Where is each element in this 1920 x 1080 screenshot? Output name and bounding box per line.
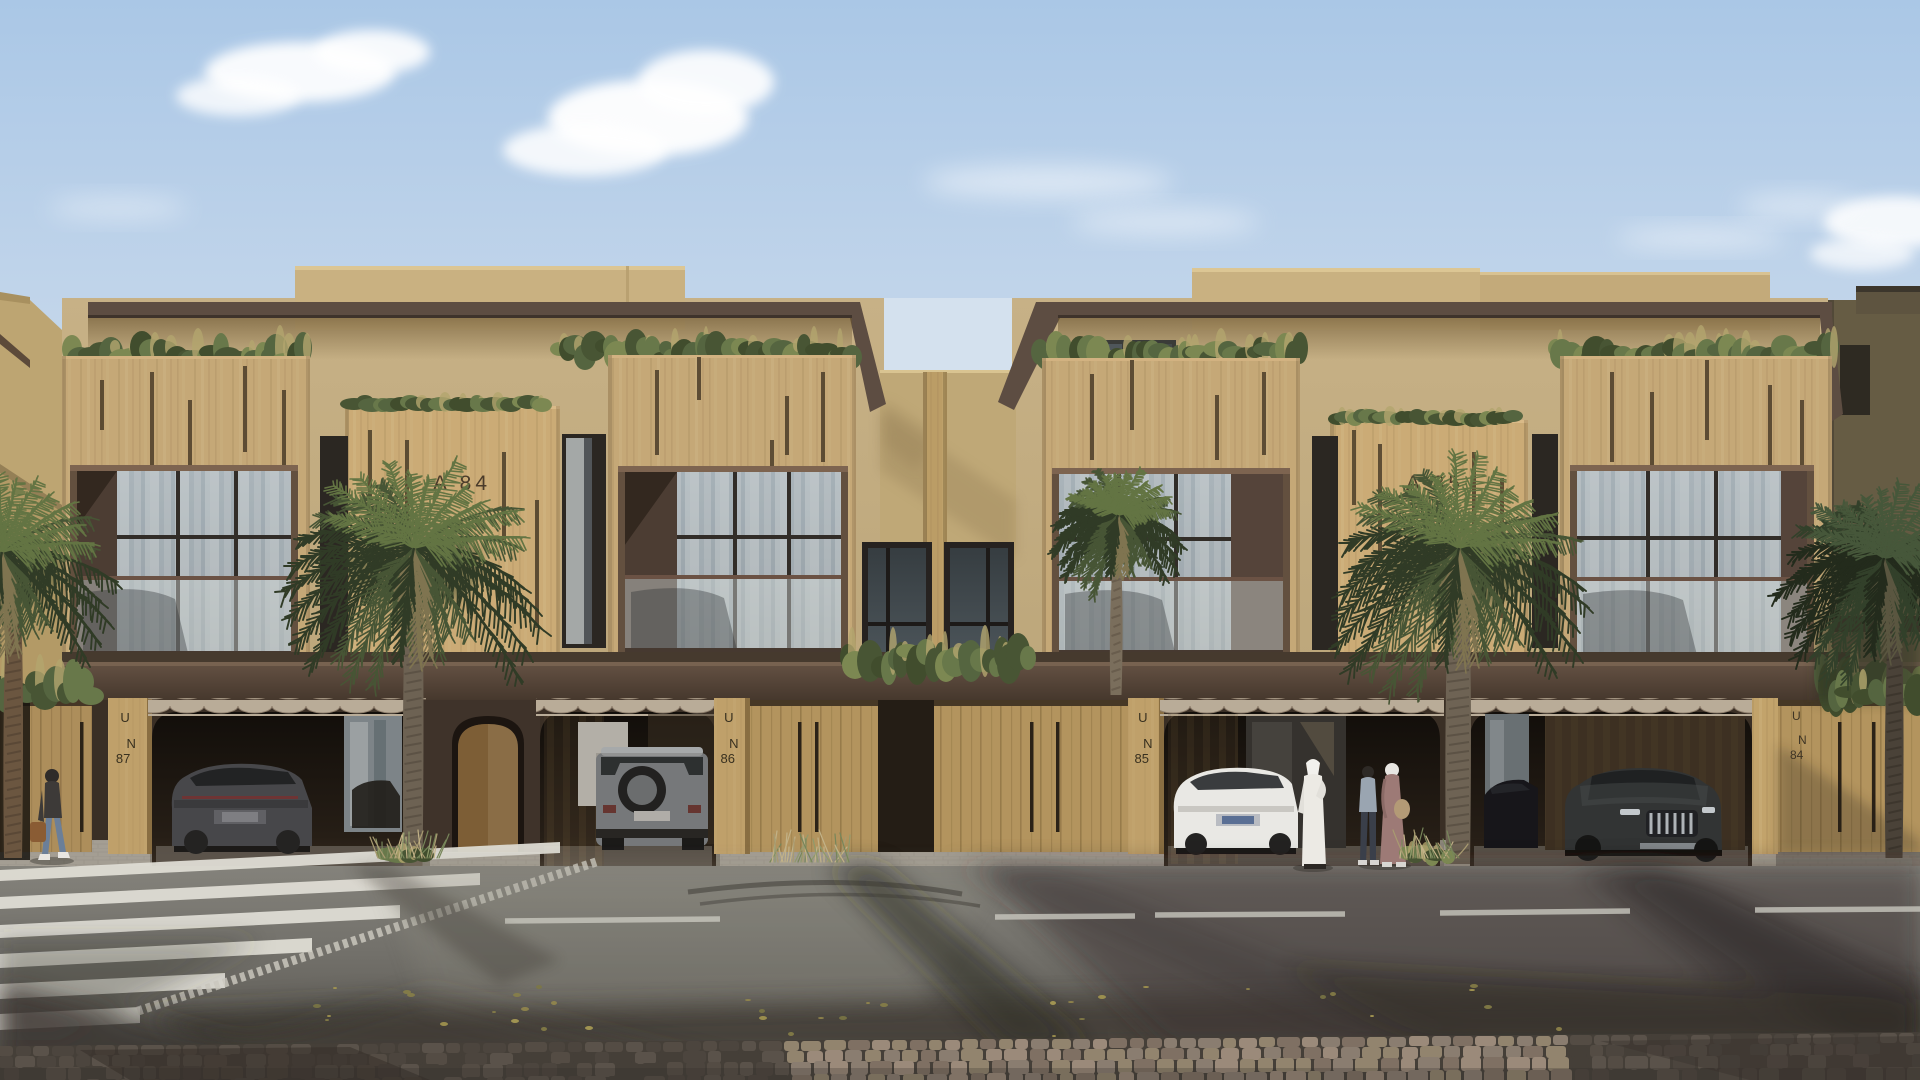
svg-text:86: 86 <box>720 751 734 766</box>
svg-text:U: U <box>1138 710 1147 725</box>
svg-text:U: U <box>724 710 733 725</box>
svg-text:U: U <box>1792 709 1801 723</box>
svg-text:N: N <box>126 736 135 751</box>
svg-text:N: N <box>1798 733 1807 747</box>
svg-text:85: 85 <box>1134 751 1148 766</box>
svg-text:U: U <box>120 710 129 725</box>
svg-text:N: N <box>1143 736 1152 751</box>
svg-text:N: N <box>729 736 738 751</box>
svg-text:87: 87 <box>116 751 130 766</box>
svg-text:84: 84 <box>1790 748 1804 762</box>
